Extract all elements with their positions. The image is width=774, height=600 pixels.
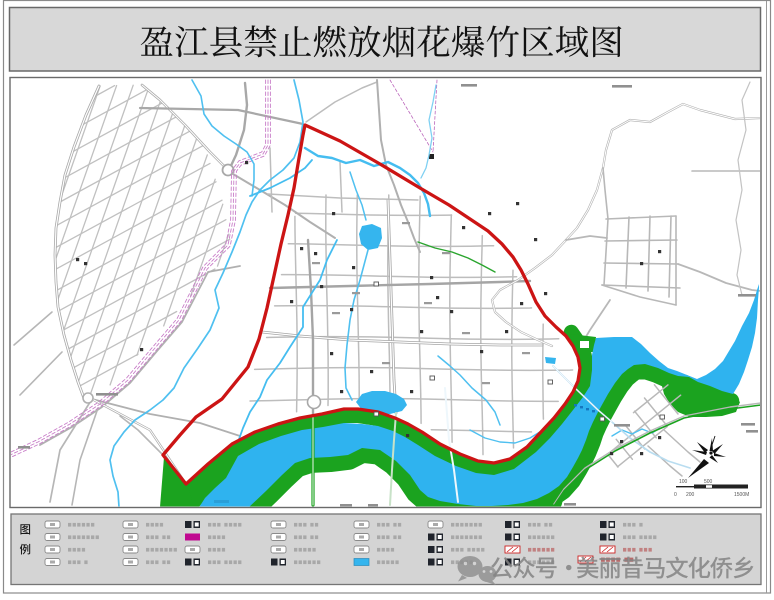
svg-text:0: 0: [674, 492, 677, 498]
svg-text:500: 500: [704, 479, 713, 485]
svg-text:200: 200: [686, 492, 695, 498]
svg-text:100: 100: [679, 479, 688, 485]
svg-text:1500M: 1500M: [734, 492, 749, 498]
